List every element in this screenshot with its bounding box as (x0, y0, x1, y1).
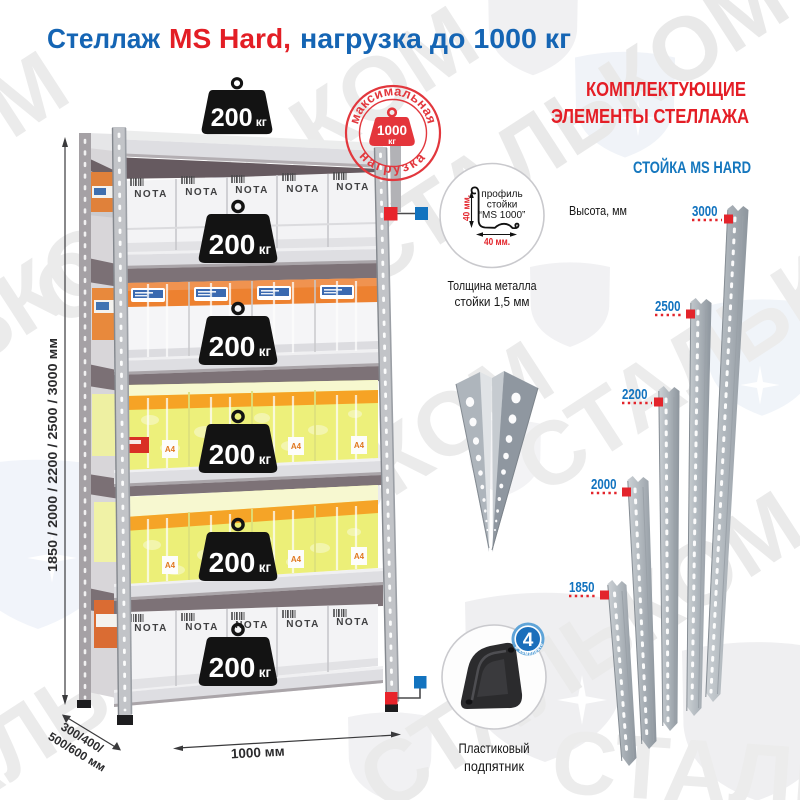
svg-text:40 мм.: 40 мм. (484, 237, 510, 248)
svg-text:СТОЙКА MS HARD: СТОЙКА MS HARD (633, 158, 751, 177)
svg-text:A4: A4 (354, 441, 365, 450)
svg-text:профиль: профиль (481, 188, 522, 200)
svg-text:2200: 2200 (622, 387, 648, 403)
svg-text:2000: 2000 (591, 477, 617, 493)
svg-text:NOTA: NOTA (185, 622, 219, 633)
svg-text:NOTA: NOTA (286, 184, 320, 195)
svg-text:A4: A4 (165, 561, 176, 570)
svg-text:1000 мм: 1000 мм (231, 744, 285, 762)
svg-text:NOTA: NOTA (134, 623, 168, 634)
svg-text:подпятник: подпятник (464, 759, 524, 774)
svg-text:NOTA: NOTA (336, 182, 370, 193)
svg-text:ЭЛЕМЕНТЫ СТЕЛЛАЖА: ЭЛЕМЕНТЫ СТЕЛЛАЖА (551, 106, 749, 128)
svg-text:NOTA: NOTA (235, 185, 269, 196)
svg-text:NOTA: NOTA (134, 189, 168, 200)
svg-text:A4: A4 (354, 552, 365, 561)
svg-text:Толщина металла: Толщина металла (448, 278, 538, 293)
svg-text:1850 / 2000 / 2200 / 2500 / 30: 1850 / 2000 / 2200 / 2500 / 3000 мм (45, 338, 60, 572)
svg-text:1850: 1850 (569, 580, 595, 596)
svg-text:Пластиковый: Пластиковый (459, 741, 530, 756)
svg-text:NOTA: NOTA (336, 617, 370, 628)
svg-text:3000: 3000 (692, 204, 718, 220)
svg-text:стойки 1,5 мм: стойки 1,5 мм (455, 294, 530, 309)
svg-text:Стеллаж: Стеллаж (47, 23, 161, 54)
svg-text:нагрузка до 1000 кг: нагрузка до 1000 кг (300, 23, 571, 54)
svg-text:стойки: стойки (487, 200, 518, 211)
svg-text:NOTA: NOTA (286, 619, 320, 630)
svg-text:A4: A4 (291, 555, 302, 564)
svg-text:MS Hard,: MS Hard, (169, 23, 291, 54)
svg-text:“MS 1000”: “MS 1000” (479, 210, 526, 221)
svg-text:40 мм.: 40 мм. (462, 195, 473, 221)
svg-text:A4: A4 (165, 445, 176, 454)
svg-text:2500: 2500 (655, 299, 681, 315)
svg-text:A4: A4 (291, 442, 302, 451)
svg-text:Высота, мм: Высота, мм (569, 203, 627, 218)
svg-text:КОМПЛЕКТУЮЩИЕ: КОМПЛЕКТУЮЩИЕ (586, 79, 746, 101)
svg-text:кг: кг (388, 136, 396, 146)
svg-text:NOTA: NOTA (185, 187, 219, 198)
svg-text:4: 4 (523, 630, 534, 651)
